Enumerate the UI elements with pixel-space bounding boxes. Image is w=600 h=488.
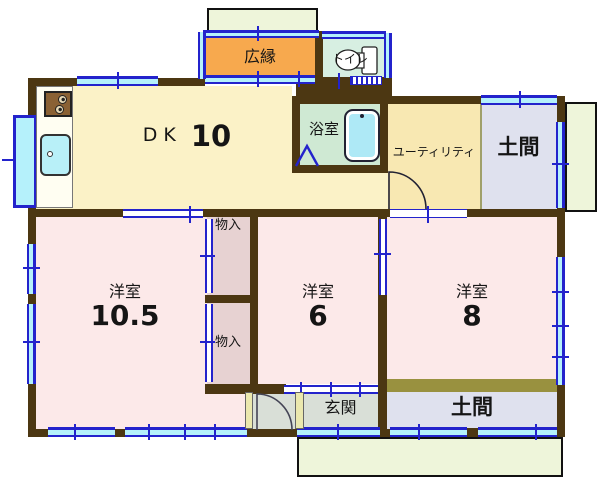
window-toilet-right [384, 33, 392, 78]
stove-burner [55, 105, 64, 114]
slidedoor-room6-room8 [379, 219, 387, 295]
window-room8-right [556, 257, 565, 385]
label-doma-lower: 土間 [387, 396, 557, 418]
stove-burner [58, 95, 67, 104]
window-tick [74, 424, 76, 440]
sink-icon [40, 134, 71, 176]
label-closet-lower: 物入 [204, 336, 252, 350]
bay-window [13, 115, 37, 208]
door-tick [330, 382, 332, 397]
door-tick [200, 255, 215, 257]
wall-bath-right [380, 104, 388, 172]
window-large-bottom-1 [48, 427, 115, 437]
window-tick [23, 267, 40, 269]
door-doma-lower-1 [390, 427, 467, 437]
label-dk: DK 10 [133, 118, 241, 154]
door-toilet-hatch [350, 76, 382, 85]
dk-name: DK [143, 126, 182, 146]
label-utility: ユーティリティ [383, 146, 485, 159]
room-right-size: 8 [387, 301, 557, 330]
label-bath: 浴室 [298, 122, 350, 138]
wall-toilet-bath [296, 82, 392, 104]
door-tick [535, 424, 537, 440]
label-closet-upper: 物入 [204, 219, 252, 233]
window-tick [257, 26, 259, 41]
door-tick [374, 253, 391, 255]
porch-bottom [297, 437, 563, 477]
wall-closet-divider [205, 295, 258, 303]
label-room-mid: 洋室 6 [258, 284, 378, 330]
window-tick [552, 356, 569, 358]
window-large-left-2 [27, 304, 36, 384]
label-genkan: 玄関 [300, 400, 381, 417]
window-tick [519, 91, 521, 108]
door-notch [467, 428, 478, 435]
window-tick [214, 424, 216, 440]
dk-size: 10 [191, 121, 231, 151]
label-room-large: 洋室 10.5 [40, 284, 210, 330]
window-doma-right [556, 122, 565, 208]
door-tick [359, 382, 361, 397]
label-room-right: 洋室 8 [387, 284, 557, 330]
floor-plan: DK 10 広縁 トイレ 浴室 ユーティリティ 土間 洋室 10.5 物入 物入… [0, 0, 600, 488]
wall-bath-bottom [292, 165, 388, 173]
window-tick [2, 159, 16, 161]
label-toilet: トイレ [320, 53, 380, 66]
door-tick [189, 206, 191, 223]
wall-middle-horiz [28, 209, 565, 217]
window-tick [23, 341, 40, 343]
bathtub-drain [360, 114, 364, 118]
window-hiroen-top [203, 30, 319, 38]
door-tick [337, 424, 339, 440]
window-large-left-1 [27, 244, 36, 294]
window-tick [117, 72, 119, 89]
window-tick [257, 71, 259, 87]
shoe-cabinet-left [245, 392, 253, 429]
door-doma-lower-2 [478, 427, 557, 437]
corridor [292, 172, 390, 209]
window-large-bottom-2 [125, 427, 247, 437]
door-tick [427, 206, 429, 223]
window-tick [338, 73, 340, 89]
sink-drain [47, 151, 53, 157]
wall-toilet-bottom-left [318, 77, 350, 85]
window-tick [552, 163, 569, 165]
window-tick [184, 424, 186, 440]
room-large-size: 10.5 [40, 301, 210, 330]
door-tick [418, 424, 420, 440]
window-tick [148, 424, 150, 440]
label-doma-upper: 土間 [480, 136, 557, 158]
wall-olive-doma [387, 379, 557, 392]
step-right [565, 102, 597, 212]
window-tick [298, 71, 300, 87]
wall-genkan-top-piece [250, 384, 286, 394]
window-toilet-top [322, 31, 386, 39]
slidedoor-dk-room-large [123, 209, 203, 218]
label-hiroen: 広縁 [205, 49, 315, 66]
wall-closet-right [250, 217, 258, 392]
room-mid-size: 6 [258, 301, 378, 330]
